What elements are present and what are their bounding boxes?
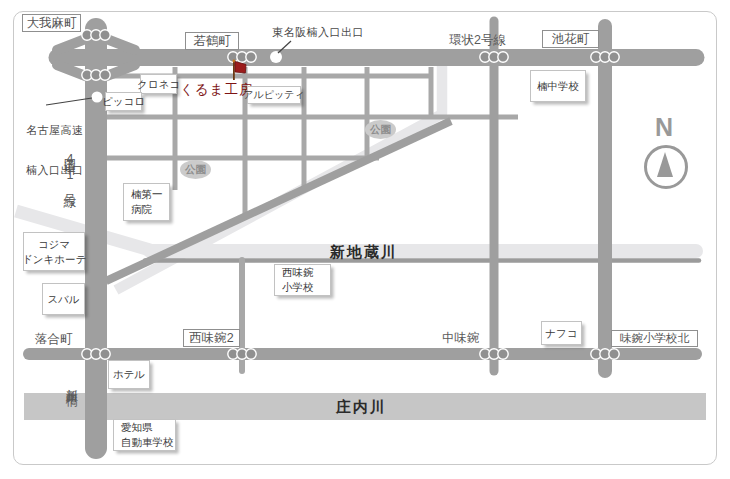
landmark-text: コジマ	[38, 237, 70, 252]
landmark-alpitti: アルピッティ	[247, 86, 301, 104]
river-shinjizo-band	[143, 244, 703, 258]
road-label-ogasacho: 大我麻町	[22, 14, 81, 32]
landmark-text: ピッコロ	[102, 94, 145, 109]
landmark-text: クロネコ	[137, 77, 180, 92]
landmark-text: 小学校	[282, 280, 314, 295]
compass-needle-icon	[657, 152, 673, 177]
callout-nagoya-line2: 楠入口出口	[26, 164, 84, 177]
river-label-shonaigawa: 庄内川	[336, 398, 387, 417]
landmark-kusunoki-junior-high: 楠中学校	[530, 70, 586, 102]
higashimeihan-ramp-marker-icon	[270, 51, 282, 63]
bridge-label-shinkawanakabashi: 新川中橋	[63, 378, 80, 386]
road-label-ikehanacho: 池花町	[542, 30, 599, 48]
road-label-nakaajima: 中味鋺	[442, 330, 480, 347]
road-label-ajima-elementary-north: 味鋺小学校北	[611, 330, 698, 347]
river-label-shinjizogawa: 新地蔵川	[330, 243, 398, 262]
road-label-kanjo2: 環状2号線	[449, 32, 506, 49]
landmark-text: 楠中学校	[537, 79, 579, 94]
landmark-text: アルピッティ	[243, 88, 304, 102]
compass-n-label: N	[655, 113, 673, 142]
landmark-nafco: ナフコ	[541, 321, 582, 345]
landmark-text: 愛知県	[121, 420, 153, 435]
landmark-text: スバル	[47, 292, 79, 307]
landmark-piccolo: ピッコロ	[105, 92, 142, 111]
landmark-text: ナフコ	[545, 326, 577, 341]
callout-higashimeihan: 東名阪楠入口出口	[272, 26, 364, 39]
landmark-kojima-donki: コジマ ドンキホーテ	[23, 232, 85, 271]
landmark-hotel: ホテル	[108, 360, 150, 389]
access-map: 大我麻町 若鶴町 池花町 西味鋺2 味鋺小学校北 環状2号線 落合町 中味鋺 国…	[0, 0, 730, 479]
callout-nagoya-line1: 名古屋高速	[26, 124, 84, 137]
landmark-text: 自動車学校	[121, 435, 174, 450]
landmark-text: ホテル	[113, 367, 145, 382]
landmark-subaru: スバル	[42, 283, 85, 315]
landmark-nishiajima-elementary: 西味鋺 小学校	[274, 264, 331, 296]
landmark-kusunoki-daiichi-hospital: 楠第一 病院	[123, 183, 170, 221]
road-label-ochiaicho: 落合町	[35, 331, 73, 348]
landmark-text: ドンキホーテ	[22, 252, 86, 267]
park-badge-1: 公園	[180, 160, 211, 179]
landmark-kuroneko: クロネコ	[140, 74, 177, 94]
nagoya-expwy-ramp-marker-icon	[92, 92, 103, 103]
landmark-text: 西味鋺	[282, 265, 314, 280]
landmark-text: 病院	[131, 202, 152, 217]
road-label-nishiajima2: 西味鋺2	[183, 329, 240, 347]
road-label-wakatsurucho: 若鶴町	[185, 32, 239, 50]
park-badge-2: 公園	[365, 120, 396, 139]
landmark-aichi-driving-school: 愛知県 自動車学校	[113, 419, 176, 451]
landmark-text: 楠第一	[131, 187, 163, 202]
callout-nagoya-expwy: 名古屋高速 楠入口出口	[26, 98, 84, 204]
